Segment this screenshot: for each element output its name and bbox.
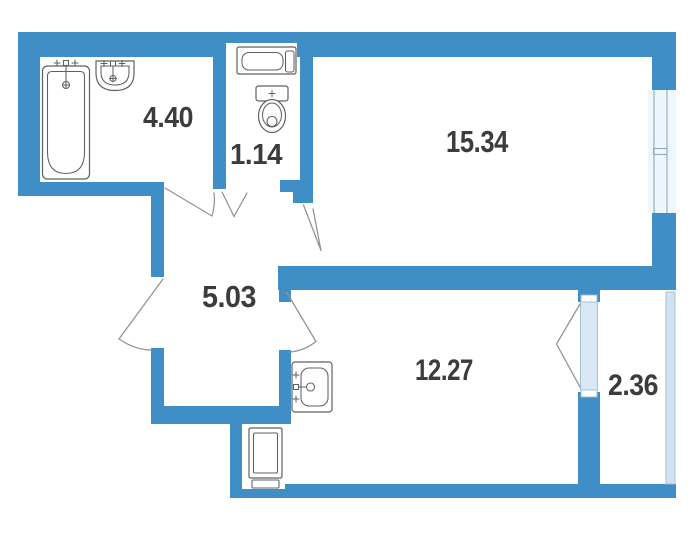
wall-kitchen-hall — [279, 350, 291, 424]
room-label-wc: 1.14 — [230, 139, 282, 171]
room-label-living-room: 15.34 — [446, 124, 509, 159]
balcony-door-sill-top — [581, 295, 597, 302]
wall-wc-bottom-chunk — [280, 180, 313, 192]
balcony-glazing — [666, 292, 675, 484]
floor-plan: 4.40 1.14 15.34 5.03 12.27 2.36 — [0, 0, 700, 536]
wall-hall-bottom — [151, 406, 291, 424]
window-living-room — [648, 90, 676, 213]
wall-hall-left-upper — [151, 196, 164, 277]
washing-machine-icon — [237, 47, 296, 74]
kitchen-sink-icon — [292, 362, 332, 412]
wall-top — [18, 32, 676, 57]
room-label-hallway: 5.03 — [202, 279, 256, 314]
wall-living-kitchen-divider — [278, 266, 676, 290]
balcony-door-sill-bottom — [581, 390, 597, 397]
room-label-balcony: 2.36 — [608, 369, 658, 402]
bathroom-sink-icon — [96, 61, 134, 91]
window-recess — [648, 90, 676, 213]
wall-wc-bottom-step — [293, 192, 313, 203]
wall-bathroom-bottom — [18, 182, 164, 196]
balcony-door-glass — [581, 302, 598, 390]
toilet-icon — [256, 86, 288, 133]
balcony-door-window — [581, 295, 598, 397]
room-label-bathroom: 4.40 — [143, 102, 193, 134]
wall-bottom — [230, 484, 676, 498]
wall-bathroom-wc-divider — [213, 57, 226, 189]
bathtub-icon — [43, 60, 90, 179]
floor-plan-page: 4.40 1.14 15.34 5.03 12.27 2.36 — [0, 0, 700, 536]
wall-left — [18, 32, 40, 196]
room-label-kitchen: 12.27 — [415, 354, 473, 387]
wall-wc-right — [300, 57, 313, 192]
wall-balcony-divider-lower — [578, 392, 600, 484]
